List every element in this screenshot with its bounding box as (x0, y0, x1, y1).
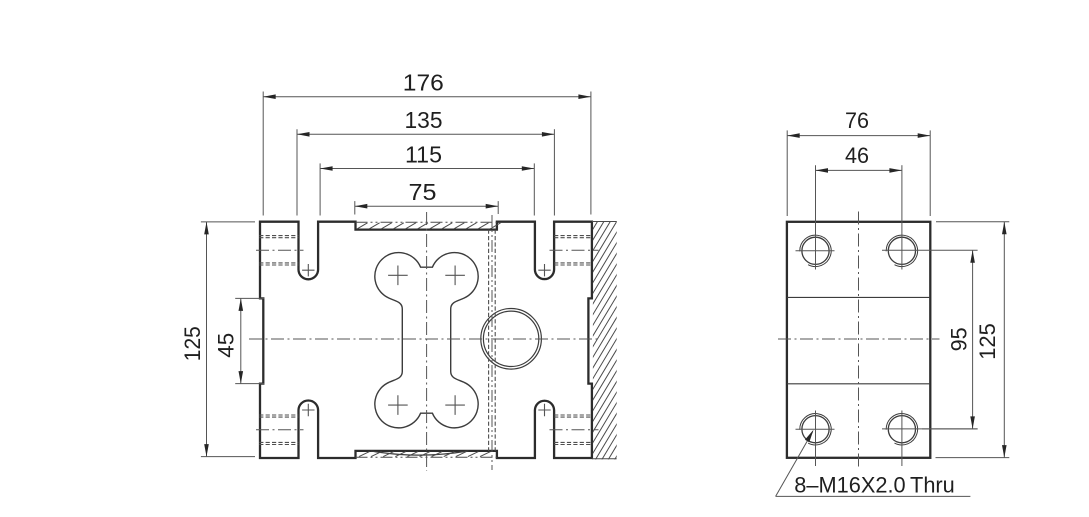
svg-text:115: 115 (405, 141, 442, 167)
svg-text:46: 46 (845, 143, 869, 168)
svg-text:75: 75 (409, 179, 437, 205)
svg-text:135: 135 (405, 107, 443, 133)
svg-text:176: 176 (403, 70, 444, 96)
svg-text:125: 125 (975, 323, 1000, 360)
svg-text:125: 125 (180, 326, 205, 361)
svg-text:45: 45 (213, 333, 238, 358)
svg-text:95: 95 (947, 327, 972, 351)
svg-text:76: 76 (845, 108, 869, 133)
svg-text:8–M16X2.0 Thru: 8–M16X2.0 Thru (794, 472, 955, 497)
